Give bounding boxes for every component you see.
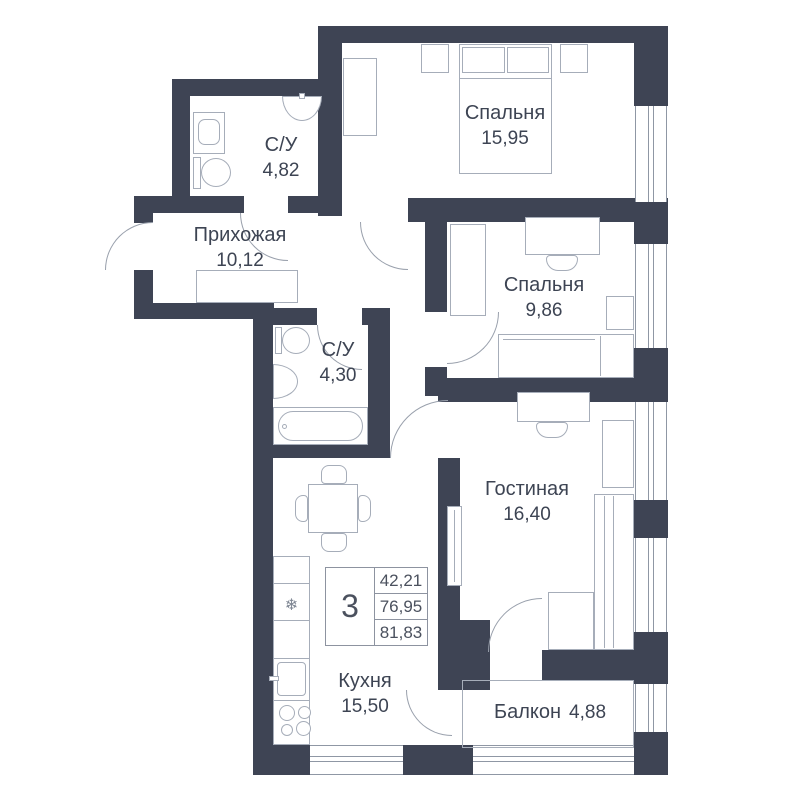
- window: [635, 684, 667, 732]
- stove-burner-icon: [296, 721, 311, 736]
- bathtub-inner-icon: [278, 411, 363, 441]
- wardrobe: [343, 58, 377, 136]
- room-label-bedroom1: Спальня 15,95: [425, 100, 585, 152]
- bed-inner-line: [503, 339, 595, 340]
- room-area: 4,30: [298, 363, 378, 389]
- room-area: 15,95: [425, 126, 585, 152]
- window: [473, 745, 634, 775]
- faucet-icon: [299, 93, 305, 99]
- pillow: [507, 47, 549, 73]
- wall-segment: [134, 196, 153, 223]
- room-name: Спальня: [425, 100, 585, 126]
- wall-segment: [172, 79, 190, 213]
- bathtub-drain-icon: [282, 424, 287, 429]
- room-area: 10,12: [150, 248, 330, 274]
- washbasin-icon: [273, 364, 298, 399]
- nightstand: [560, 44, 588, 73]
- room-area: 4,82: [231, 158, 331, 184]
- room-label-bedroom2: Спальня 9,86: [464, 272, 624, 324]
- room-area: 4,88: [569, 702, 606, 723]
- counter-divider: [274, 620, 309, 621]
- room-area: 16,40: [447, 502, 607, 528]
- nightstand: [421, 44, 449, 73]
- balcony-door-arc: [488, 598, 542, 652]
- room-area: 9,86: [464, 298, 624, 324]
- room-name: С/У: [231, 132, 331, 158]
- chair: [321, 533, 347, 552]
- counter-divider: [274, 583, 309, 584]
- wall-segment: [273, 308, 317, 325]
- stat-living-area: 42,21: [375, 568, 427, 593]
- wall-segment: [634, 26, 668, 106]
- room-area: 15,50: [285, 694, 445, 720]
- sofa-cushion-line: [613, 496, 614, 648]
- dining-table: [308, 484, 358, 533]
- washbasin-icon: [282, 96, 322, 121]
- counter-divider: [274, 658, 309, 659]
- wall-segment: [172, 79, 318, 96]
- room-name: Гостиная: [447, 476, 607, 502]
- toilet-bowl-icon: [201, 158, 231, 187]
- toilet-icon: [275, 327, 282, 354]
- desk: [525, 217, 600, 255]
- window: [635, 106, 667, 202]
- wall-segment: [153, 196, 244, 213]
- wall-segment: [403, 745, 473, 775]
- window: [635, 244, 667, 348]
- room-name: С/У: [298, 337, 378, 363]
- toilet-icon: [193, 157, 201, 189]
- wall-segment: [634, 632, 668, 684]
- wall-segment: [318, 26, 668, 43]
- pillow: [462, 47, 505, 73]
- room-label-bath2: С/У 4,30: [298, 337, 378, 389]
- window: [635, 538, 667, 632]
- wall-segment: [288, 196, 318, 213]
- chair: [546, 255, 578, 271]
- wall-segment: [634, 500, 668, 538]
- fridge-snowflake-icon: ❄: [275, 593, 308, 619]
- single-bed: [498, 334, 634, 378]
- desk: [517, 392, 590, 422]
- wall-segment: [634, 348, 668, 380]
- door-swing-arc: [390, 400, 448, 458]
- room-name: Балкон: [494, 701, 561, 723]
- wall-segment: [425, 198, 447, 312]
- door-swing-arc: [360, 222, 408, 270]
- room-label-hall: Прихожая 10,12: [150, 222, 330, 274]
- wall-segment: [253, 303, 273, 775]
- wall-segment: [542, 650, 638, 680]
- room-name: Спальня: [464, 272, 624, 298]
- stat-area: 76,95: [375, 593, 427, 619]
- bed-blanket-line: [460, 78, 551, 79]
- stat-total-area: 81,83: [375, 619, 427, 645]
- room-label-balcony: Балкон4,88: [470, 699, 630, 726]
- chair: [295, 495, 308, 522]
- room-label-living: Гостиная 16,40: [447, 476, 607, 528]
- chair: [321, 465, 347, 484]
- wall-segment: [318, 26, 342, 216]
- entrance-door-arc: [105, 222, 153, 270]
- room-count: 3: [326, 568, 375, 645]
- window: [635, 402, 667, 500]
- window: [310, 745, 403, 775]
- room-label-bath1: С/У 4,82: [231, 132, 331, 184]
- faucet-icon: [269, 676, 279, 681]
- wall-segment: [634, 202, 668, 244]
- apartment-stats-table: 3 42,21 76,95 81,83: [325, 567, 428, 646]
- washing-machine-drum-icon: [198, 119, 220, 145]
- room-name: Кухня: [285, 668, 445, 694]
- bed-divider-line: [600, 336, 601, 376]
- floor-plan: ❄ 3 42,21 76,95 81,83 С/У 4,82 Спальня 1…: [0, 0, 800, 800]
- room-label-kitchen: Кухня 15,50: [285, 668, 445, 720]
- chair: [536, 422, 568, 438]
- stove-burner-icon: [281, 724, 293, 736]
- sofa-chaise: [548, 592, 594, 650]
- room-name: Прихожая: [150, 222, 330, 248]
- wardrobe: [196, 270, 298, 303]
- wall-segment: [634, 732, 668, 775]
- chair: [358, 495, 371, 522]
